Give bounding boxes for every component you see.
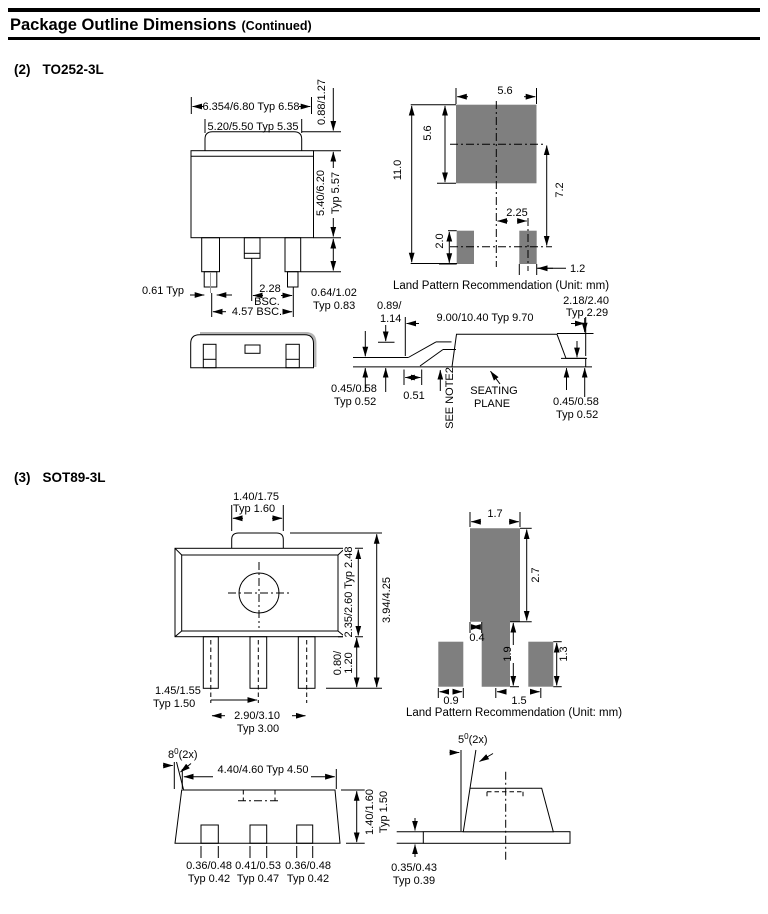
angle-count: (2x) — [179, 749, 198, 761]
dim-sot89-pitch-2: Typ 1.50 — [153, 698, 195, 710]
dim-sot89-tab-2: Typ 1.60 — [233, 503, 275, 515]
dim-sot89-tab-1: 1.40/1.75 — [233, 491, 279, 503]
dim-sot89-lead2-a: 0.41/0.53 — [235, 860, 281, 872]
dim-sot89-lead-thickness-1: 0.35/0.43 — [391, 862, 437, 874]
to252-see-note: SEE NOTE2 — [444, 367, 456, 429]
dim-to252-land-pitch: 2.25 — [506, 207, 527, 219]
dim-sot89-body-height: 2.35/2.60 Typ 2.48 — [343, 545, 355, 640]
dim-to252-land-pad-gap: 7.2 — [554, 182, 566, 197]
dim-sot89-land-side-height: 1.3 — [558, 646, 570, 661]
dim-to252-tab-width: 5.20/5.50 Typ 5.35 — [208, 121, 299, 133]
dim-to252-land-total-height: 11.0 — [392, 160, 404, 181]
dim-sot89-lead-len-2: 1.20 — [343, 652, 355, 673]
dim-to252-length: 9.00/10.40 Typ 9.70 — [436, 312, 533, 324]
dim-to252-standoff-2: 1.14 — [380, 313, 401, 325]
dim-to252-foot: 0.51 — [403, 390, 424, 402]
dim-sot89-land-center-len: 1.9 — [502, 646, 514, 661]
dim-sot89-bottom-height-1: 1.40/1.60 — [364, 789, 376, 835]
angle-count: (2x) — [469, 734, 488, 746]
dim-sot89-total-height: 3.94/4.25 — [381, 577, 393, 623]
dim-to252-thickness-left-2: Typ 0.52 — [334, 396, 376, 408]
dim-sot89-bottom-width: 4.40/4.60 Typ 4.50 — [218, 764, 309, 776]
dim-to252-thickness-right-1: 0.45/0.58 — [553, 396, 599, 408]
dim-sot89-pitch-1: 1.45/1.55 — [155, 685, 201, 697]
dim-sot89-lead-thickness-2: Typ 0.39 — [393, 875, 435, 887]
dim-to252-land-small-height: 2.0 — [434, 233, 446, 248]
dim-sot89-land-side-width: 0.9 — [443, 695, 458, 707]
dim-sot89-lead2-b: Typ 0.47 — [237, 873, 279, 885]
dim-to252-tab-height: 0.88/1.27 — [316, 79, 328, 125]
dim-to252-pitch-1: 2.28 — [259, 283, 280, 295]
dim-sot89-span-1: 2.90/3.10 — [234, 710, 280, 722]
dim-sot89-land-step: 0.4 — [469, 632, 484, 644]
dim-to252-top-width: 6.354/6.80 Typ 6.58 — [202, 101, 299, 113]
dim-to252-thickness-right-2: Typ 0.52 — [556, 409, 598, 421]
dim-to252-span: 4.57 BSC. — [232, 306, 282, 318]
dim-to252-thickness-left-1: 0.45/0.58 — [331, 383, 377, 395]
dim-sot89-draft-angle-side: 50(2x) — [458, 731, 488, 746]
dim-sot89-lead3-a: 0.36/0.48 — [285, 860, 331, 872]
dim-to252-lead-width-2: Typ 0.83 — [313, 300, 355, 312]
dim-to252-tab-len-1: 2.18/2.40 — [563, 295, 609, 307]
dim-sot89-lead3-b: Typ 0.42 — [287, 873, 329, 885]
to252-seating-plane-2: PLANE — [474, 398, 510, 410]
package-drawings — [0, 0, 768, 914]
dim-sot89-land-pad-height: 2.7 — [530, 567, 542, 582]
sot89-bottom-view — [163, 762, 365, 858]
dim-to252-land-pad-width: 5.6 — [495, 85, 514, 97]
dim-to252-land-pad-height: 5.6 — [422, 125, 434, 140]
dim-sot89-span-2: Typ 3.00 — [237, 723, 279, 735]
sot89-land-caption: Land Pattern Recommendation (Unit: mm) — [406, 707, 622, 719]
dim-sot89-land-pad-width: 1.7 — [487, 508, 502, 520]
dim-sot89-bottom-height-2: Typ 1.50 — [378, 791, 390, 833]
dim-to252-tab-len-2: Typ 2.29 — [566, 307, 608, 319]
dim-to252-land-small-width: 1.2 — [570, 263, 585, 275]
to252-land-caption: Land Pattern Recommendation (Unit: mm) — [393, 280, 609, 292]
to252-seating-plane-1: SEATING — [470, 385, 517, 397]
dim-to252-lead-tip: 0.61 Typ — [142, 285, 184, 297]
dim-sot89-lead1-a: 0.36/0.48 — [186, 860, 232, 872]
dim-sot89-draft-angle-bottom: 80(2x) — [168, 746, 198, 761]
sot89-side-view — [397, 750, 570, 862]
dim-to252-standoff-1: 0.89/ — [377, 300, 401, 312]
datasheet-page: Package Outline Dimensions(Continued) (2… — [0, 0, 768, 914]
dim-sot89-lead1-b: Typ 0.42 — [188, 873, 230, 885]
to252-bottom-view — [191, 333, 316, 368]
dim-to252-body-height-2: Typ 5.57 — [330, 170, 342, 216]
dim-to252-body-height-1: 5.40/6.20 — [315, 170, 327, 216]
dim-to252-lead-width-1: 0.64/1.02 — [311, 287, 357, 299]
sot89-land-pattern — [438, 512, 561, 698]
dim-sot89-land-pitch: 1.5 — [511, 695, 526, 707]
